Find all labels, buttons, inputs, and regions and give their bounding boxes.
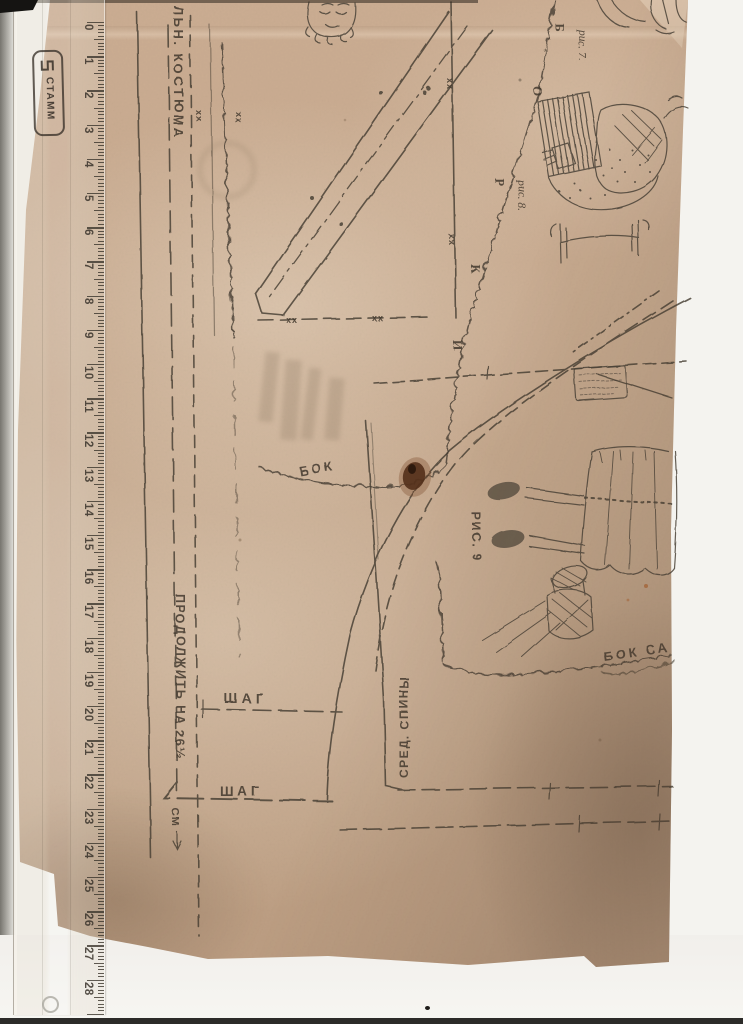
ruler-tick [98, 220, 105, 221]
ruler-tick [87, 980, 104, 981]
ruler-tick [98, 819, 105, 820]
ruler-tick [98, 607, 105, 608]
ruler-tick [98, 812, 105, 813]
ruler-tick [98, 443, 105, 444]
ruler-tick [98, 361, 105, 362]
ruler-tick [98, 419, 105, 420]
ruler-tick [98, 597, 105, 598]
ruler-tick [98, 1010, 105, 1011]
ruler-tick [98, 624, 105, 625]
ruler-tick [87, 330, 104, 331]
ruler-tick [98, 696, 105, 697]
ruler-tick [98, 309, 105, 310]
ruler-tick [98, 63, 105, 64]
ruler-tick [98, 412, 105, 413]
ruler-tick [98, 477, 105, 478]
ruler-tick [98, 94, 105, 95]
ruler-tick [87, 501, 104, 502]
ruler-tick [98, 969, 105, 970]
ruler-tick [98, 172, 105, 173]
ruler-tick [98, 846, 105, 847]
ruler-number: 14 [82, 503, 94, 517]
ruler-tick [98, 408, 105, 409]
ruler-tick [98, 101, 105, 102]
ruler-tick [98, 545, 105, 546]
ruler-tick [98, 422, 105, 423]
ruler-number: 0 [82, 24, 94, 31]
ruler-hole [42, 996, 59, 1013]
ruler-tick [98, 374, 105, 375]
label-fig7: рис. 7. [576, 29, 588, 61]
ruler-tick [98, 662, 105, 663]
ruler-tick [98, 576, 105, 577]
ruler-tick [98, 320, 105, 321]
ruler-tick [98, 627, 105, 628]
ruler-groove [42, 0, 43, 1015]
ruler-tick [98, 426, 105, 427]
ruler-tick [98, 497, 105, 498]
ruler-number: 13 [82, 469, 94, 483]
ruler-tick [98, 145, 105, 146]
ruler-tick [98, 891, 105, 892]
ruler-tick [98, 114, 105, 115]
ruler-tick [98, 385, 105, 386]
ruler-tick [98, 750, 105, 751]
ruler-tick [98, 880, 105, 881]
ruler-tick [98, 887, 105, 888]
ruler-tick [98, 504, 105, 505]
ruler-tick [94, 689, 105, 690]
ruler-tick [98, 556, 105, 557]
ink-bleed-ghosts [200, 143, 345, 441]
notch-mark: хх [194, 110, 204, 122]
figure-9-sketch [487, 447, 677, 576]
ruler-number: 1 [82, 58, 94, 65]
ruler-tick [98, 203, 105, 204]
ruler-tick [98, 388, 105, 389]
ruler-tick [98, 904, 105, 905]
ruler-number: 10 [82, 366, 94, 380]
ruler-tick [87, 809, 104, 810]
ruler-tick [87, 467, 104, 468]
ruler-tick [94, 415, 105, 416]
ruler-tick [98, 566, 105, 567]
ruler-tick [98, 121, 105, 122]
ruler-tick [98, 70, 105, 71]
ruler-tick [98, 354, 105, 355]
ruler-tick [98, 268, 105, 269]
ruler-tick [98, 747, 105, 748]
ruler-tick [98, 870, 105, 871]
ruler-tick [98, 508, 105, 509]
ruler-tick [98, 118, 105, 119]
ruler-tick [98, 898, 105, 899]
scanner-bottom-bar [0, 1018, 743, 1024]
ruler-number: 12 [82, 434, 94, 448]
ruler-tick [87, 638, 104, 639]
ruler-tick [98, 617, 105, 618]
figure-7-sketch [597, 0, 686, 34]
ruler-tick [94, 928, 105, 929]
ruler-tick [98, 761, 105, 762]
ruler-tick [98, 713, 105, 714]
ruler-tick [98, 583, 105, 584]
ruler-tick [94, 347, 105, 348]
ruler-tick [98, 272, 105, 273]
ruler-tick [98, 111, 105, 112]
ruler-tick [98, 778, 105, 779]
ruler-tick [98, 716, 105, 717]
ruler-tick [98, 631, 105, 632]
ruler-tick [98, 939, 105, 940]
ruler-tick [98, 350, 105, 351]
ruler-tick [98, 853, 105, 854]
ruler-tick [98, 833, 105, 834]
ruler-tick [98, 49, 105, 50]
ruler-tick [98, 391, 105, 392]
ruler-tick [98, 805, 105, 806]
ruler-tick [98, 1004, 105, 1005]
label-cm: СМ [169, 808, 181, 827]
ruler-tick [98, 915, 105, 916]
ruler-tick [98, 46, 105, 47]
label-sred-spiny: СРЕД. СПИНЫ [397, 675, 411, 778]
ruler-tick [98, 97, 105, 98]
ruler-tick [98, 337, 105, 338]
stamm-logo-icon [38, 57, 55, 75]
pattern-drawing: ЛЬН. КОСТЮМА ПРОДОЛЖИТЬ НА 26½ СМ ШАГ ША… [0, 0, 743, 1024]
ruler-tick [98, 299, 105, 300]
ruler-tick [98, 436, 105, 437]
ruler-tick [98, 781, 105, 782]
ruler-tick [98, 579, 105, 580]
ruler-tick [94, 723, 105, 724]
ruler-tick [98, 785, 105, 786]
ruler-tick [98, 190, 105, 191]
ruler-tick [98, 685, 105, 686]
label-garment-title: ЛЬН. КОСТЮМА [171, 6, 186, 140]
ruler-tick [94, 450, 105, 451]
ruler-tick [98, 343, 105, 344]
ruler-tick [98, 131, 105, 132]
ruler-number: 2 [82, 92, 94, 99]
ruler-tick [98, 679, 105, 680]
ruler-tick [98, 200, 105, 201]
ruler-number: 23 [82, 811, 94, 825]
ruler-tick [98, 525, 105, 526]
ruler-tick [98, 829, 105, 830]
ruler-tick [98, 36, 105, 37]
ruler-tick [94, 244, 105, 245]
ruler-tick [98, 371, 105, 372]
ruler-tick [87, 159, 104, 160]
ruler-tick [98, 692, 105, 693]
label-prodolzhit: ПРОДОЛЖИТЬ НА 26½ [173, 594, 187, 760]
ruler-tick [94, 313, 105, 314]
ruler-tick [94, 73, 105, 74]
ruler-tick [98, 532, 105, 533]
ruler-groove [70, 0, 71, 1015]
ruler-tick [98, 600, 105, 601]
ruler-tick [98, 289, 105, 290]
ruler-tick [98, 60, 105, 61]
ruler-tick [94, 792, 105, 793]
ruler-tick [98, 470, 105, 471]
dust-speck [425, 1006, 430, 1010]
point-letter-i: И [450, 340, 464, 350]
ruler-number: 9 [82, 332, 94, 339]
ruler-tick [98, 32, 105, 33]
ruler-tick [98, 730, 105, 731]
ruler-tick [94, 894, 105, 895]
ruler-tick [98, 966, 105, 967]
ruler-tick [98, 986, 105, 987]
ruler-tick [94, 381, 105, 382]
ruler-tick [98, 709, 105, 710]
label-fig9: РИС. 9 [469, 512, 483, 561]
ruler-tick [98, 138, 105, 139]
ruler-tick [98, 135, 105, 136]
ruler-tick [98, 949, 105, 950]
ruler-tick [98, 610, 105, 611]
ruler-tick [98, 395, 105, 396]
point-letter-o: О [530, 86, 544, 96]
ruler-tick [98, 207, 105, 208]
ruler-tick [98, 1000, 105, 1001]
label-shag-upper: ШАГ [224, 691, 267, 706]
ruler-tick [87, 843, 104, 844]
ruler-tick [94, 210, 105, 211]
ruler-tick [98, 214, 105, 215]
ruler-tick [98, 658, 105, 659]
ruler-tick [98, 990, 105, 991]
ruler-tick [98, 237, 105, 238]
paper-specks [239, 79, 649, 742]
ruler-tick [94, 39, 105, 40]
ruler-tick [98, 573, 105, 574]
ruler-number: 3 [82, 127, 94, 134]
ruler-tick [98, 25, 105, 26]
ruler-tick [98, 856, 105, 857]
ruler-number: 7 [82, 263, 94, 270]
ruler-tick [98, 559, 105, 560]
ruler-tick [98, 487, 105, 488]
ruler-tick [98, 285, 105, 286]
label-shag-lower: ШАГ [220, 784, 263, 799]
paper-stain [395, 454, 436, 501]
ruler-tick [94, 552, 105, 553]
ruler-tick [94, 586, 105, 587]
ruler-tick [98, 265, 105, 266]
ruler-tick [98, 1007, 105, 1008]
ruler-tick [98, 737, 105, 738]
ruler-tick [98, 802, 105, 803]
ruler-tick [98, 815, 105, 816]
ruler-number: 8 [82, 298, 94, 305]
ruler: СТАММ 0123456789101112131415161718192021… [13, 0, 105, 1015]
ruler-tick [94, 757, 105, 758]
ruler-tick [98, 456, 105, 457]
ruler-tick [94, 997, 105, 998]
ruler-tick [98, 798, 105, 799]
ruler-tick [98, 901, 105, 902]
ruler-tick [98, 155, 105, 156]
ruler-tick [98, 316, 105, 317]
ruler-tick [98, 651, 105, 652]
ruler-tick [98, 521, 105, 522]
ruler-tick [98, 754, 105, 755]
ruler-tick [98, 166, 105, 167]
ruler-tick [94, 963, 105, 964]
ruler-tick [98, 983, 105, 984]
ruler-tick [98, 956, 105, 957]
ruler-tick [98, 952, 105, 953]
label-bok-sarafana: БОК СА [602, 640, 671, 664]
ruler-tick [98, 744, 105, 745]
ruler-tick [98, 839, 105, 840]
ruler-tick [98, 84, 105, 85]
ruler-tick [98, 248, 105, 249]
ruler-tick [98, 593, 105, 594]
ruler-tick [98, 925, 105, 926]
ruler-tick [98, 703, 105, 704]
ruler-number: 19 [82, 674, 94, 688]
stamp-box [574, 365, 627, 400]
ruler-tick [98, 764, 105, 765]
ruler-number: 27 [82, 947, 94, 961]
ruler-tick [98, 29, 105, 30]
ruler-tick [94, 142, 105, 143]
ruler-tick [98, 77, 105, 78]
ruler-tick [98, 357, 105, 358]
ruler-tick [98, 429, 105, 430]
ruler-tick [98, 590, 105, 591]
ruler-number: 15 [82, 537, 94, 551]
point-letter-r: Р [492, 178, 506, 186]
ruler-tick [98, 241, 105, 242]
label-fig8: рис. 8. [515, 179, 527, 211]
ruler-tick [98, 255, 105, 256]
notch-mark: хх [372, 313, 384, 323]
ruler-number: 24 [82, 845, 94, 859]
ruler-tick [98, 251, 105, 252]
ruler-tick [98, 795, 105, 796]
ruler-number: 17 [82, 605, 94, 619]
ruler-tick [98, 80, 105, 81]
ruler-tick [98, 439, 105, 440]
ruler-tick [98, 836, 105, 837]
ruler-tick [98, 128, 105, 129]
ruler-tick [98, 231, 105, 232]
ruler-tick [98, 402, 105, 403]
ruler-brand: СТАММ [44, 77, 56, 121]
notch-mark: хх [234, 112, 244, 124]
ruler-tick [98, 87, 105, 88]
ruler-tick [98, 727, 105, 728]
ruler-tick [98, 104, 105, 105]
ruler-tick [98, 874, 105, 875]
ruler-tick [98, 152, 105, 153]
ruler-tick [94, 484, 105, 485]
ruler-number: 26 [82, 913, 94, 927]
ruler-tick [98, 514, 105, 515]
point-letter-k: К [468, 264, 482, 273]
ruler-tick [98, 217, 105, 218]
ruler-tick [87, 125, 104, 126]
figure-8-sketch [537, 92, 688, 210]
ruler-number: 11 [82, 400, 94, 413]
ruler-tick [98, 668, 105, 669]
ruler-tick [94, 518, 105, 519]
ruler-tick [98, 340, 105, 341]
ruler-tick [98, 405, 105, 406]
ruler-tick [98, 822, 105, 823]
ruler-tick [98, 634, 105, 635]
ruler-tick [98, 196, 105, 197]
ruler-tick [98, 538, 105, 539]
label-bok: БОК [298, 458, 336, 479]
notch-mark: хх [286, 315, 298, 325]
zigzag-seam-lines [219, 0, 673, 673]
ruler-tick [98, 224, 105, 225]
ruler-tick [98, 932, 105, 933]
ruler-tick [98, 935, 105, 936]
ruler-tick [98, 973, 105, 974]
ruler-tick [87, 672, 104, 673]
ruler-tick [98, 323, 105, 324]
ruler-tick [98, 648, 105, 649]
ruler-tick [98, 480, 105, 481]
ruler-number: 20 [82, 708, 94, 722]
ruler-tick [98, 720, 105, 721]
ruler-tick [98, 921, 105, 922]
ruler-tick [98, 993, 105, 994]
ruler-tick [98, 850, 105, 851]
ruler-tick [98, 528, 105, 529]
hanger-garment-sketch [551, 220, 650, 263]
ruler-number: 22 [82, 776, 94, 790]
ruler-tick [98, 446, 105, 447]
ruler-tick [98, 186, 105, 187]
ruler-number: 5 [82, 195, 94, 202]
ruler-tick [98, 511, 105, 512]
ruler-tick [98, 66, 105, 67]
ruler-tick [98, 302, 105, 303]
ruler-number: 16 [82, 571, 94, 585]
ruler-tick [87, 1014, 104, 1015]
ruler-tick [98, 665, 105, 666]
ruler-tick [98, 43, 105, 44]
ruler-tick [94, 279, 105, 280]
ruler-tick [87, 296, 104, 297]
ruler-tick [98, 771, 105, 772]
ruler-tick [98, 542, 105, 543]
ruler-tick [94, 655, 105, 656]
ruler-tick [98, 53, 105, 54]
ruler-number: 21 [82, 742, 94, 756]
ruler-number: 4 [82, 161, 94, 168]
head-sketch [306, 2, 356, 44]
ruler-tick [98, 788, 105, 789]
ruler-tick [98, 549, 105, 550]
ruler-tick [98, 183, 105, 184]
notch-mark: хх [445, 78, 455, 90]
ruler-tick [98, 562, 105, 563]
ruler-tick [98, 863, 105, 864]
ruler-tick [94, 826, 105, 827]
ruler-tick [98, 908, 105, 909]
ruler-tick [94, 176, 105, 177]
